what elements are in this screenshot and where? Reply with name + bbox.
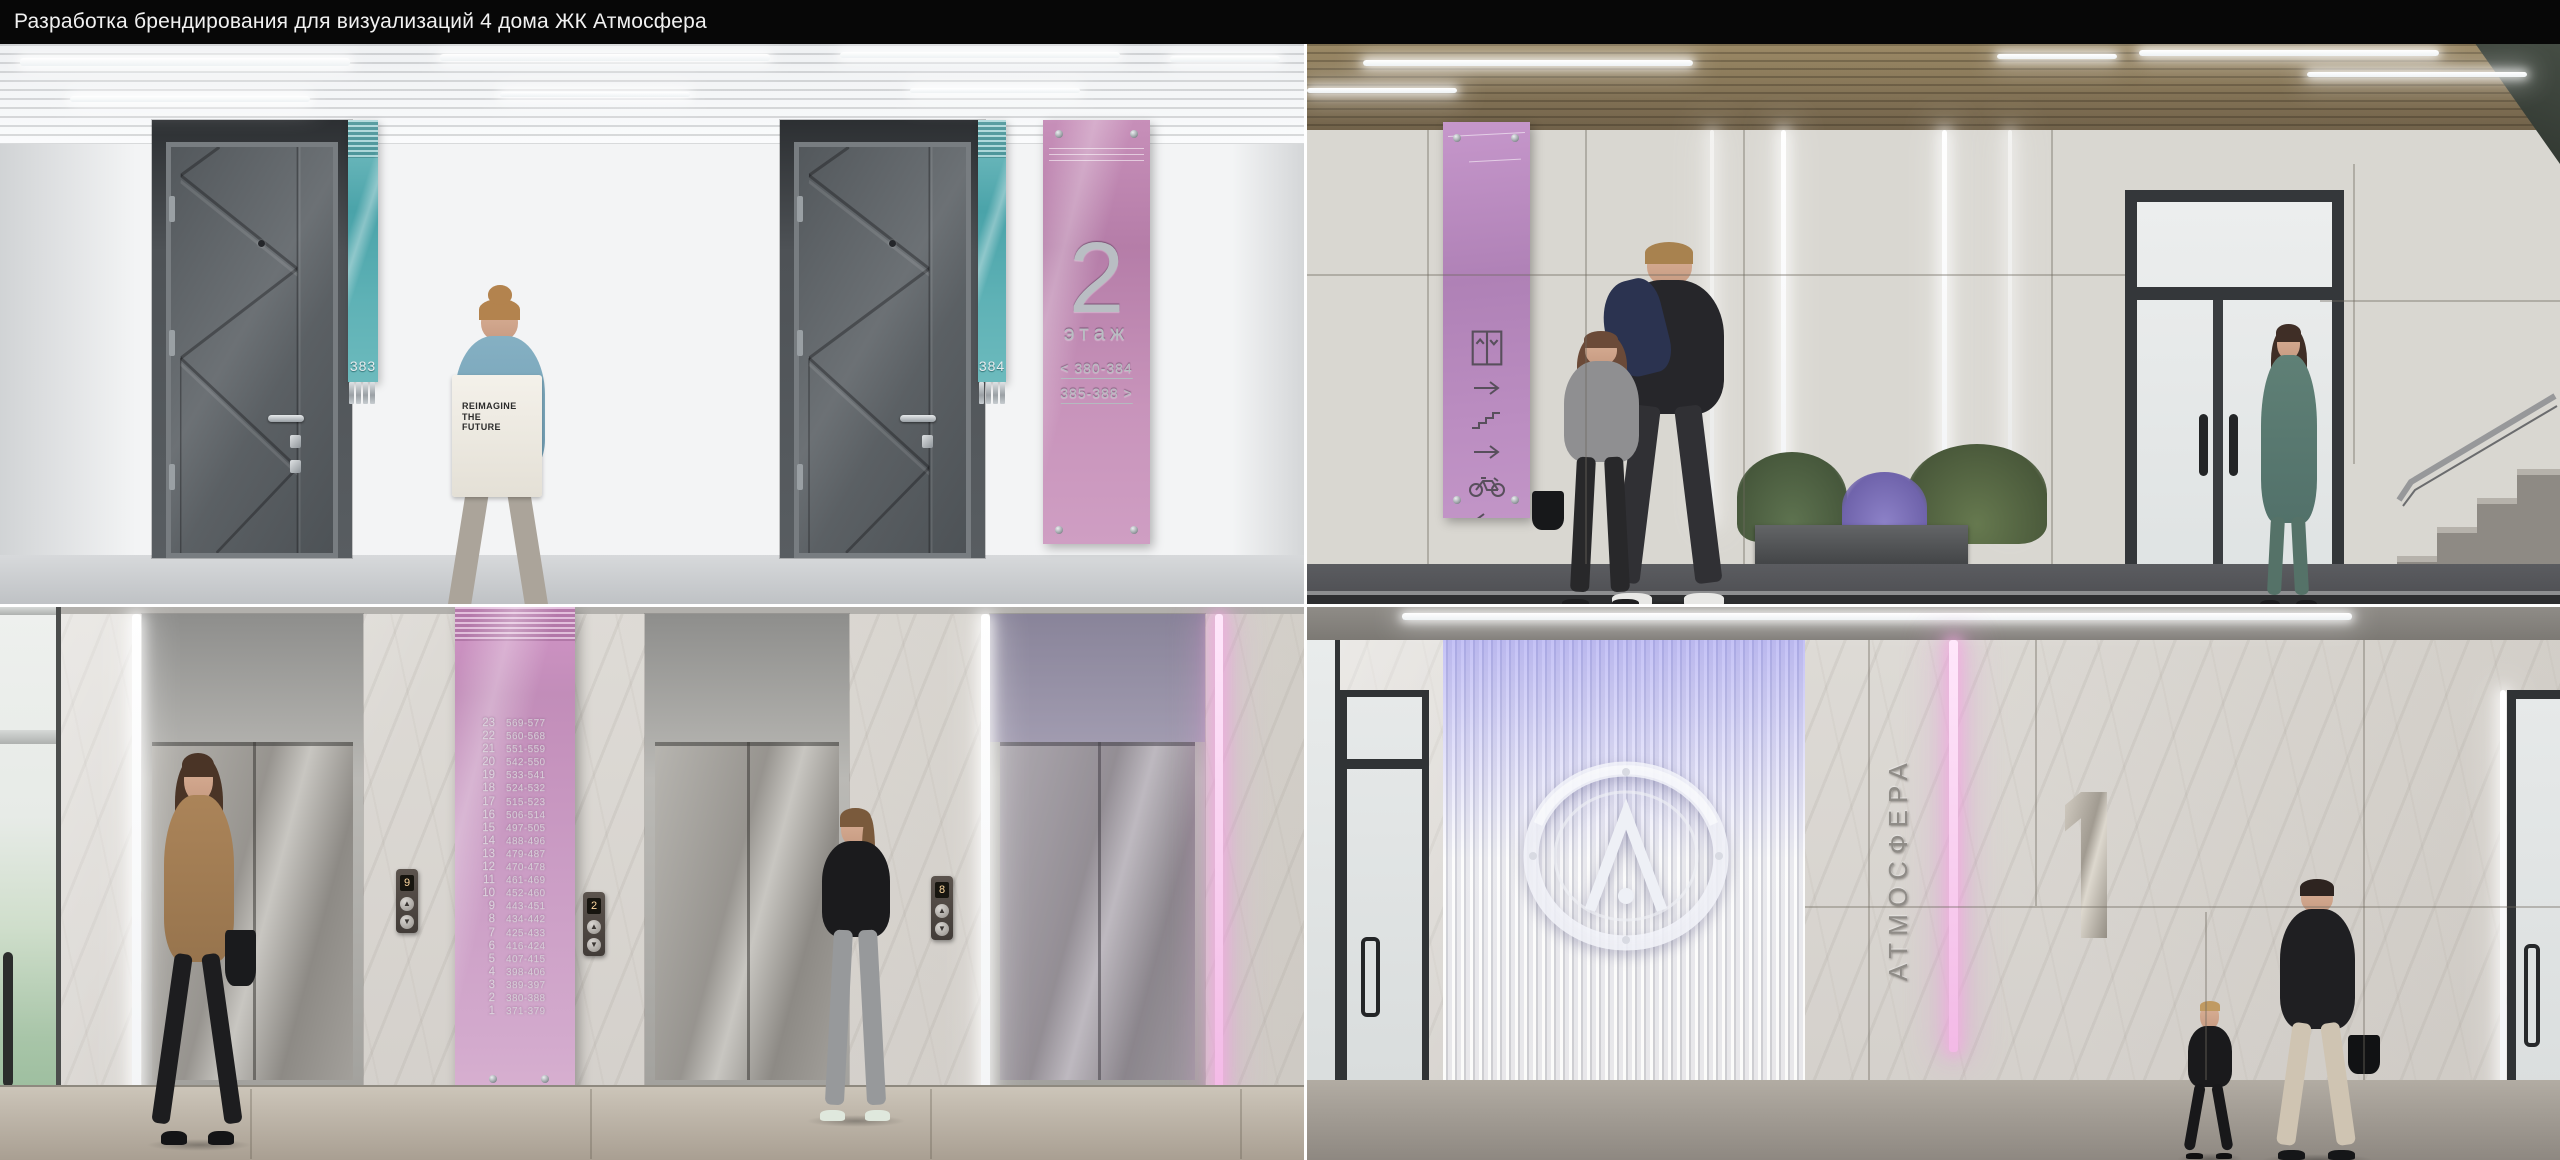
- shoe: [2296, 600, 2316, 604]
- shoe: [865, 1110, 890, 1121]
- shoe: [2186, 1153, 2202, 1159]
- hair-top: [1645, 242, 1694, 264]
- ceiling-led-light: [1997, 54, 2117, 59]
- handbag: [225, 930, 256, 986]
- ceiling-led-light: [840, 52, 1120, 58]
- leg: [1604, 456, 1630, 592]
- floor-tile-joint: [930, 1089, 932, 1159]
- tile-joint: [1743, 130, 1745, 564]
- tote-text-line: REIMAGINE: [462, 401, 542, 412]
- tile-joint: [2320, 300, 2560, 302]
- tile-joint: [1585, 130, 1587, 564]
- people-layer: [1307, 607, 2560, 1160]
- tile-joint: [1805, 906, 2560, 908]
- ceiling-led-light: [2139, 50, 2439, 56]
- shoe: [2328, 1150, 2356, 1160]
- torso: [2188, 1026, 2232, 1087]
- ceiling-led-light: [500, 92, 690, 97]
- torso: [2261, 355, 2316, 523]
- ceiling-led-light: [20, 58, 350, 66]
- tile-joint: [2051, 130, 2053, 564]
- ceiling-led-light: [1170, 56, 1280, 62]
- tile-joint: [2363, 640, 2365, 1080]
- screenshot-canvas: Разработка брендирования для визуализаци…: [0, 0, 2560, 1160]
- shoe: [1684, 593, 1724, 604]
- shoe: [2260, 600, 2280, 604]
- hair-bun: [488, 285, 512, 304]
- shoe: [161, 1131, 187, 1145]
- tile-joint: [1868, 640, 1870, 1080]
- leg: [1569, 456, 1595, 592]
- handbag: [1532, 491, 1565, 530]
- leg: [152, 953, 193, 1125]
- leg: [2184, 1083, 2207, 1151]
- leg: [2212, 1083, 2235, 1151]
- torso: [822, 841, 889, 936]
- shoe: [2278, 1150, 2306, 1160]
- tile-joint: [1307, 274, 2125, 276]
- floor-tile-joint: [590, 1089, 592, 1159]
- tile-joint: [2353, 164, 2355, 464]
- shoe: [1562, 599, 1590, 604]
- hair-top: [1584, 331, 1618, 348]
- leg: [1674, 405, 1722, 585]
- tile-joint: [2205, 912, 2207, 1080]
- ceiling-led-light: [440, 54, 770, 61]
- shoe: [820, 1110, 845, 1121]
- hair-top: [2200, 1001, 2220, 1011]
- title-bar: Разработка брендирования для визуализаци…: [0, 0, 2560, 44]
- ceiling-led-light: [1307, 88, 1457, 93]
- person-woman-green-dress: [2243, 320, 2335, 604]
- torso: [2280, 909, 2355, 1029]
- leg: [2291, 517, 2309, 596]
- render-entrance-lobby: АТМОСФЕРА 1: [1307, 607, 2560, 1160]
- ceiling-led-light: [910, 88, 1080, 93]
- page-title: Разработка брендирования для визуализаци…: [0, 10, 707, 34]
- floor-tile-joint: [1240, 1089, 1242, 1159]
- person-child: [2173, 999, 2247, 1159]
- tote-bag: REIMAGINE THE FUTURE: [452, 375, 542, 497]
- people-layer: [0, 44, 1304, 604]
- hair-top: [182, 753, 214, 777]
- render-lobby-wayfinding: [1307, 44, 2560, 604]
- leg: [2267, 517, 2285, 596]
- shoe: [2216, 1153, 2232, 1159]
- leg: [2276, 1022, 2312, 1146]
- leg: [858, 930, 886, 1106]
- tile-joint: [2035, 640, 2037, 906]
- floor-tile-joint: [250, 1089, 252, 1159]
- tote-text-line: FUTURE: [462, 422, 542, 433]
- people-layer: [0, 607, 1304, 1160]
- person-woman-black-blazer: [2255, 875, 2380, 1160]
- tote-text-line: THE: [462, 412, 542, 423]
- person-woman-ponytail: [800, 803, 912, 1121]
- person-woman-brown-blazer: [140, 747, 258, 1145]
- hair-top: [2300, 879, 2334, 896]
- person-woman: [1539, 327, 1664, 604]
- leg: [824, 930, 852, 1106]
- render-elevator-hall: 23569-57722560-56821551-55920542-5501953…: [0, 607, 1304, 1160]
- torso: [164, 795, 235, 962]
- shoe: [208, 1131, 234, 1145]
- ceiling-led-light: [2307, 72, 2527, 77]
- people-layer: [1307, 44, 2560, 604]
- torso: [1564, 361, 1639, 463]
- render-floor-corridor: 383: [0, 44, 1304, 604]
- ceiling-led-light: [1363, 60, 1693, 66]
- tile-joint: [1427, 130, 1429, 564]
- shoe: [1612, 599, 1640, 604]
- hair-top: [2276, 324, 2301, 341]
- ceiling-led-light: [70, 96, 310, 102]
